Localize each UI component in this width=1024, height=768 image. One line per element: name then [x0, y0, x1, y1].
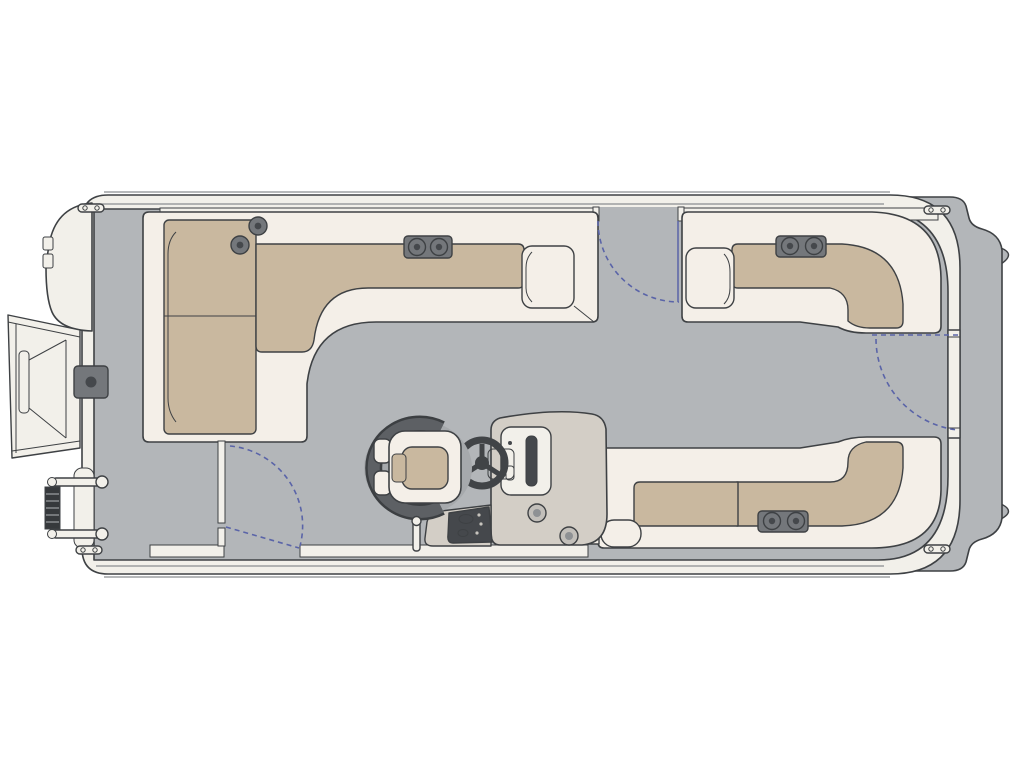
- bow-light-upper: [43, 237, 53, 250]
- cup-hole: [255, 223, 262, 230]
- gate-door-lower: [218, 528, 225, 546]
- cleat-bar: [76, 546, 102, 554]
- switch-dot: [475, 531, 478, 534]
- gangway-handle: [19, 351, 29, 413]
- bow-light-lower: [43, 254, 53, 268]
- bow-cap: [43, 203, 92, 331]
- cup-hole: [414, 244, 420, 250]
- latch-button: [86, 377, 97, 388]
- bow-deck-fitting: [74, 366, 108, 398]
- ladder-tip-bottom: [96, 528, 108, 540]
- ladder-ball-bottom: [48, 530, 57, 539]
- stern-gate-rail: [948, 330, 960, 438]
- cleat-stern-starboard: [924, 545, 950, 553]
- cup-holder-pod: [404, 236, 452, 258]
- switch-dot: [479, 522, 482, 525]
- cup-holder-pod: [758, 511, 808, 532]
- cup-hole: [793, 518, 799, 524]
- cup-hole: [811, 243, 817, 249]
- cleat-bar: [924, 206, 950, 214]
- chair-insert: [402, 447, 448, 489]
- cleat-bow-starboard: [76, 546, 102, 554]
- ladder-ball-top: [48, 478, 57, 487]
- cup-hole: [769, 518, 775, 524]
- captain-chair: [364, 420, 472, 516]
- cleat-bar: [924, 545, 950, 553]
- pylon-top: [412, 517, 421, 526]
- cushion-extension: [634, 482, 738, 526]
- bench-end-pill: [601, 520, 641, 547]
- console-cup-hole: [565, 532, 573, 540]
- pontoon-floorplan: [0, 0, 1024, 768]
- wheel-hub: [475, 456, 489, 470]
- bottom-fence-bow: [150, 545, 224, 557]
- bottom-fence-mid: [300, 545, 588, 557]
- gate-door-upper: [218, 441, 225, 523]
- dash-display: [526, 436, 537, 486]
- cleat-bow-port: [78, 204, 104, 212]
- cup-hole: [436, 244, 442, 250]
- rear-starboard-lounge: [560, 437, 941, 548]
- rear-port-lounge: [682, 212, 941, 333]
- console-cup-hole: [533, 509, 541, 517]
- cup-holder-pod: [776, 236, 826, 257]
- cup-hole: [787, 243, 793, 249]
- chair-insert-channel: [392, 454, 406, 482]
- cleat-bar: [78, 204, 104, 212]
- ski-pylon: [412, 517, 421, 552]
- switch-panel: [448, 507, 492, 543]
- port-gate-opening: [598, 207, 679, 221]
- cleat-stern-port: [924, 206, 950, 214]
- ladder-tip-top: [96, 476, 108, 488]
- gangway: [8, 315, 80, 458]
- floorplan-canvas: [0, 0, 1024, 768]
- cup-hole: [237, 242, 244, 249]
- switch-dot: [477, 513, 480, 516]
- dash-dot: [508, 441, 512, 445]
